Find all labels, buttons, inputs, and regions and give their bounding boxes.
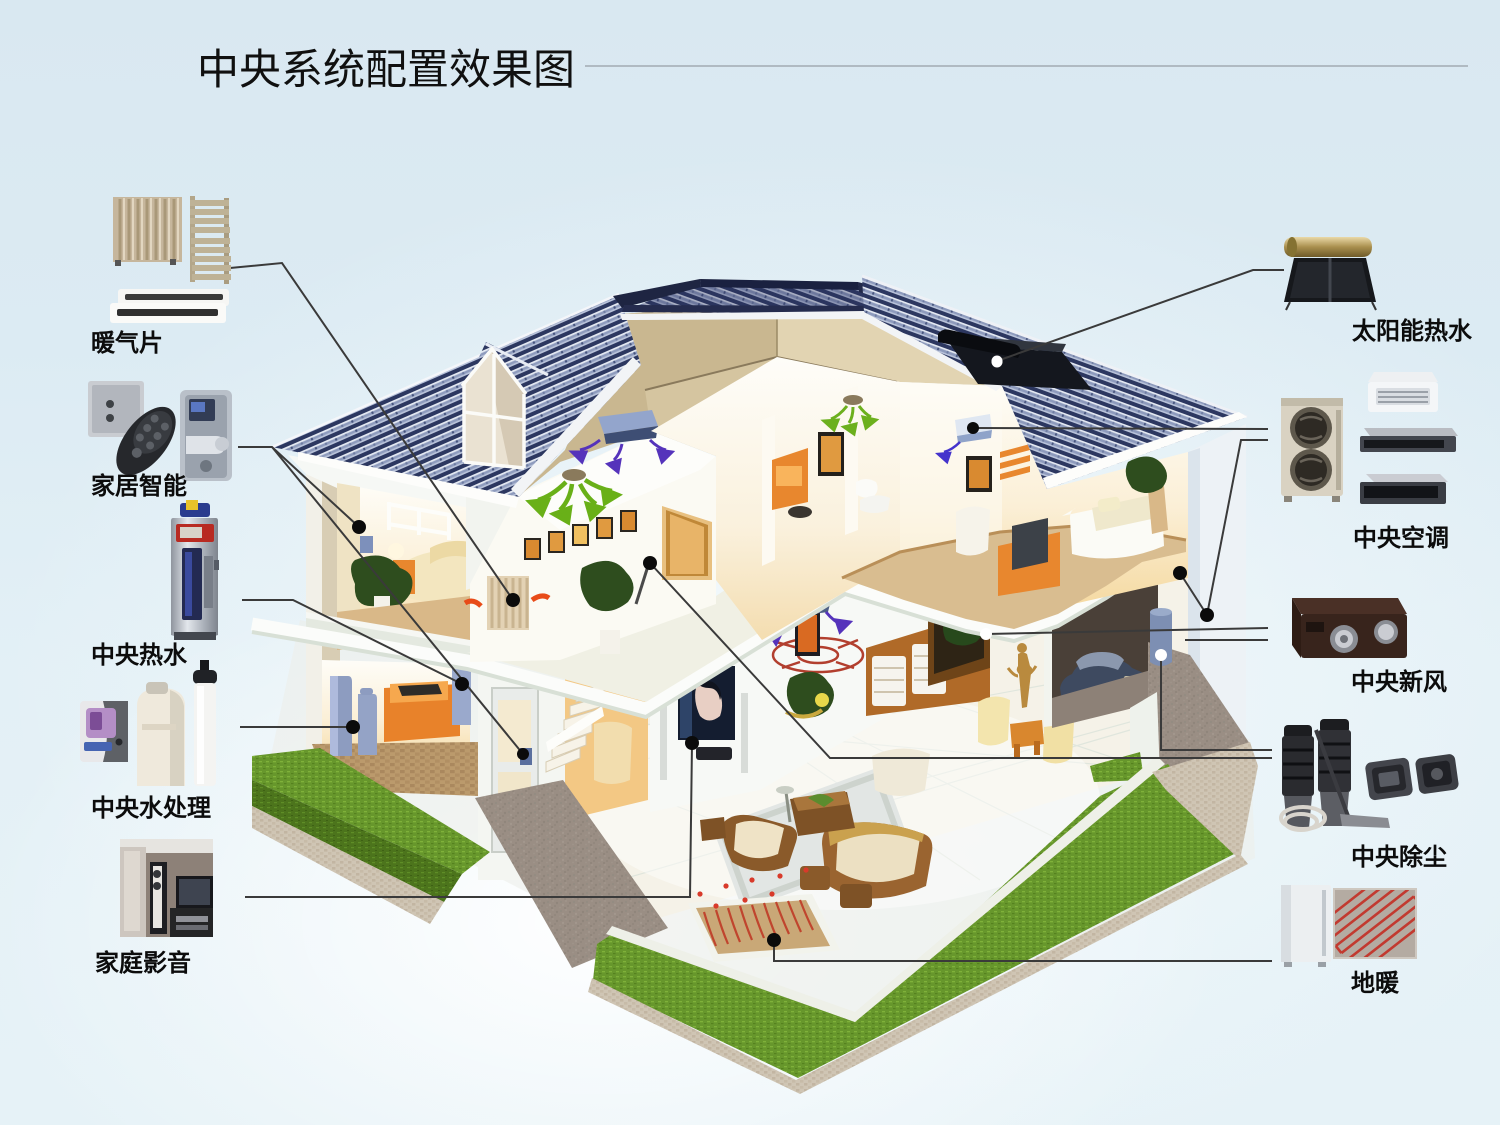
svg-text:家居智能: 家居智能 xyxy=(91,472,187,500)
svg-text:中央新风: 中央新风 xyxy=(1351,668,1447,696)
svg-text:太阳能热水: 太阳能热水 xyxy=(1352,317,1473,345)
svg-text:中央除尘: 中央除尘 xyxy=(1351,843,1447,871)
svg-text:中央热水: 中央热水 xyxy=(91,642,188,669)
svg-text:中央系统配置效果图: 中央系统配置效果图 xyxy=(197,48,575,94)
svg-text:中央空调: 中央空调 xyxy=(1353,524,1449,552)
svg-text:家庭影音: 家庭影音 xyxy=(95,949,191,977)
svg-text:中央水处理: 中央水处理 xyxy=(91,795,211,822)
svg-text:地暖: 地暖 xyxy=(1351,970,1400,997)
svg-text:暖气片: 暖气片 xyxy=(91,329,163,357)
